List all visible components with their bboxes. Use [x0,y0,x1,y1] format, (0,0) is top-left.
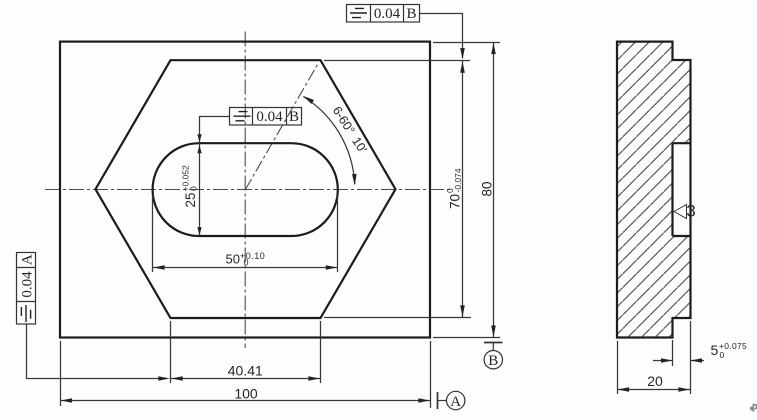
svg-text:50: 50 [226,252,240,267]
svg-text:-0.074: -0.074 [453,168,463,192]
svg-text:0.04: 0.04 [256,109,283,125]
svg-text:B: B [289,109,299,125]
svg-text:70: 70 [448,194,463,209]
svg-text:40.41: 40.41 [228,362,263,378]
svg-text:0: 0 [244,258,249,268]
svg-text:A: A [20,254,36,265]
svg-text:0: 0 [189,186,199,191]
svg-text:0: 0 [720,350,725,360]
svg-text:25: 25 [183,192,198,207]
svg-text:B: B [406,6,416,22]
svg-text:A: A [450,394,461,410]
svg-text:0.04: 0.04 [374,6,401,22]
svg-text:20: 20 [647,373,663,389]
svg-text:B: B [488,353,498,369]
svg-text:80: 80 [480,181,495,196]
svg-text:0.04: 0.04 [20,271,36,298]
svg-text:5: 5 [711,342,719,358]
svg-text:100: 100 [234,386,258,402]
svg-text:3: 3 [686,202,695,221]
